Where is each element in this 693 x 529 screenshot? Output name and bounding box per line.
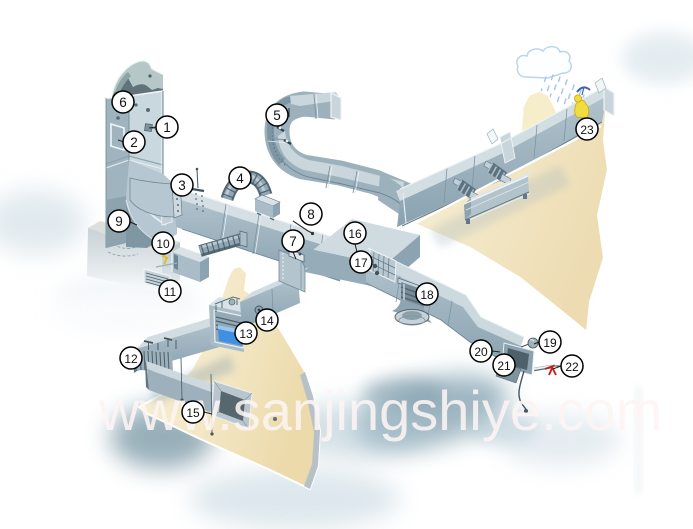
svg-text:2: 2 (130, 135, 138, 150)
svg-text:10: 10 (156, 237, 170, 251)
svg-text:18: 18 (420, 288, 434, 302)
svg-text:9: 9 (115, 214, 123, 229)
svg-text:11: 11 (164, 285, 177, 299)
svg-text:1: 1 (163, 120, 171, 135)
svg-text:14: 14 (260, 314, 274, 328)
svg-text:17: 17 (354, 256, 368, 270)
svg-text:6: 6 (119, 95, 127, 110)
svg-text:23: 23 (580, 123, 594, 137)
svg-text:22: 22 (565, 360, 579, 374)
svg-text:12: 12 (124, 352, 138, 366)
svg-text:19: 19 (543, 336, 557, 350)
svg-text:16: 16 (348, 227, 362, 241)
svg-text:4: 4 (236, 171, 244, 186)
svg-text:7: 7 (289, 234, 297, 249)
svg-text:3: 3 (178, 178, 186, 193)
svg-text:13: 13 (239, 327, 253, 341)
svg-text:15: 15 (186, 406, 200, 420)
svg-text:8: 8 (307, 207, 315, 222)
svg-text:21: 21 (497, 359, 511, 373)
svg-text:5: 5 (273, 108, 281, 123)
svg-text:20: 20 (474, 345, 488, 359)
